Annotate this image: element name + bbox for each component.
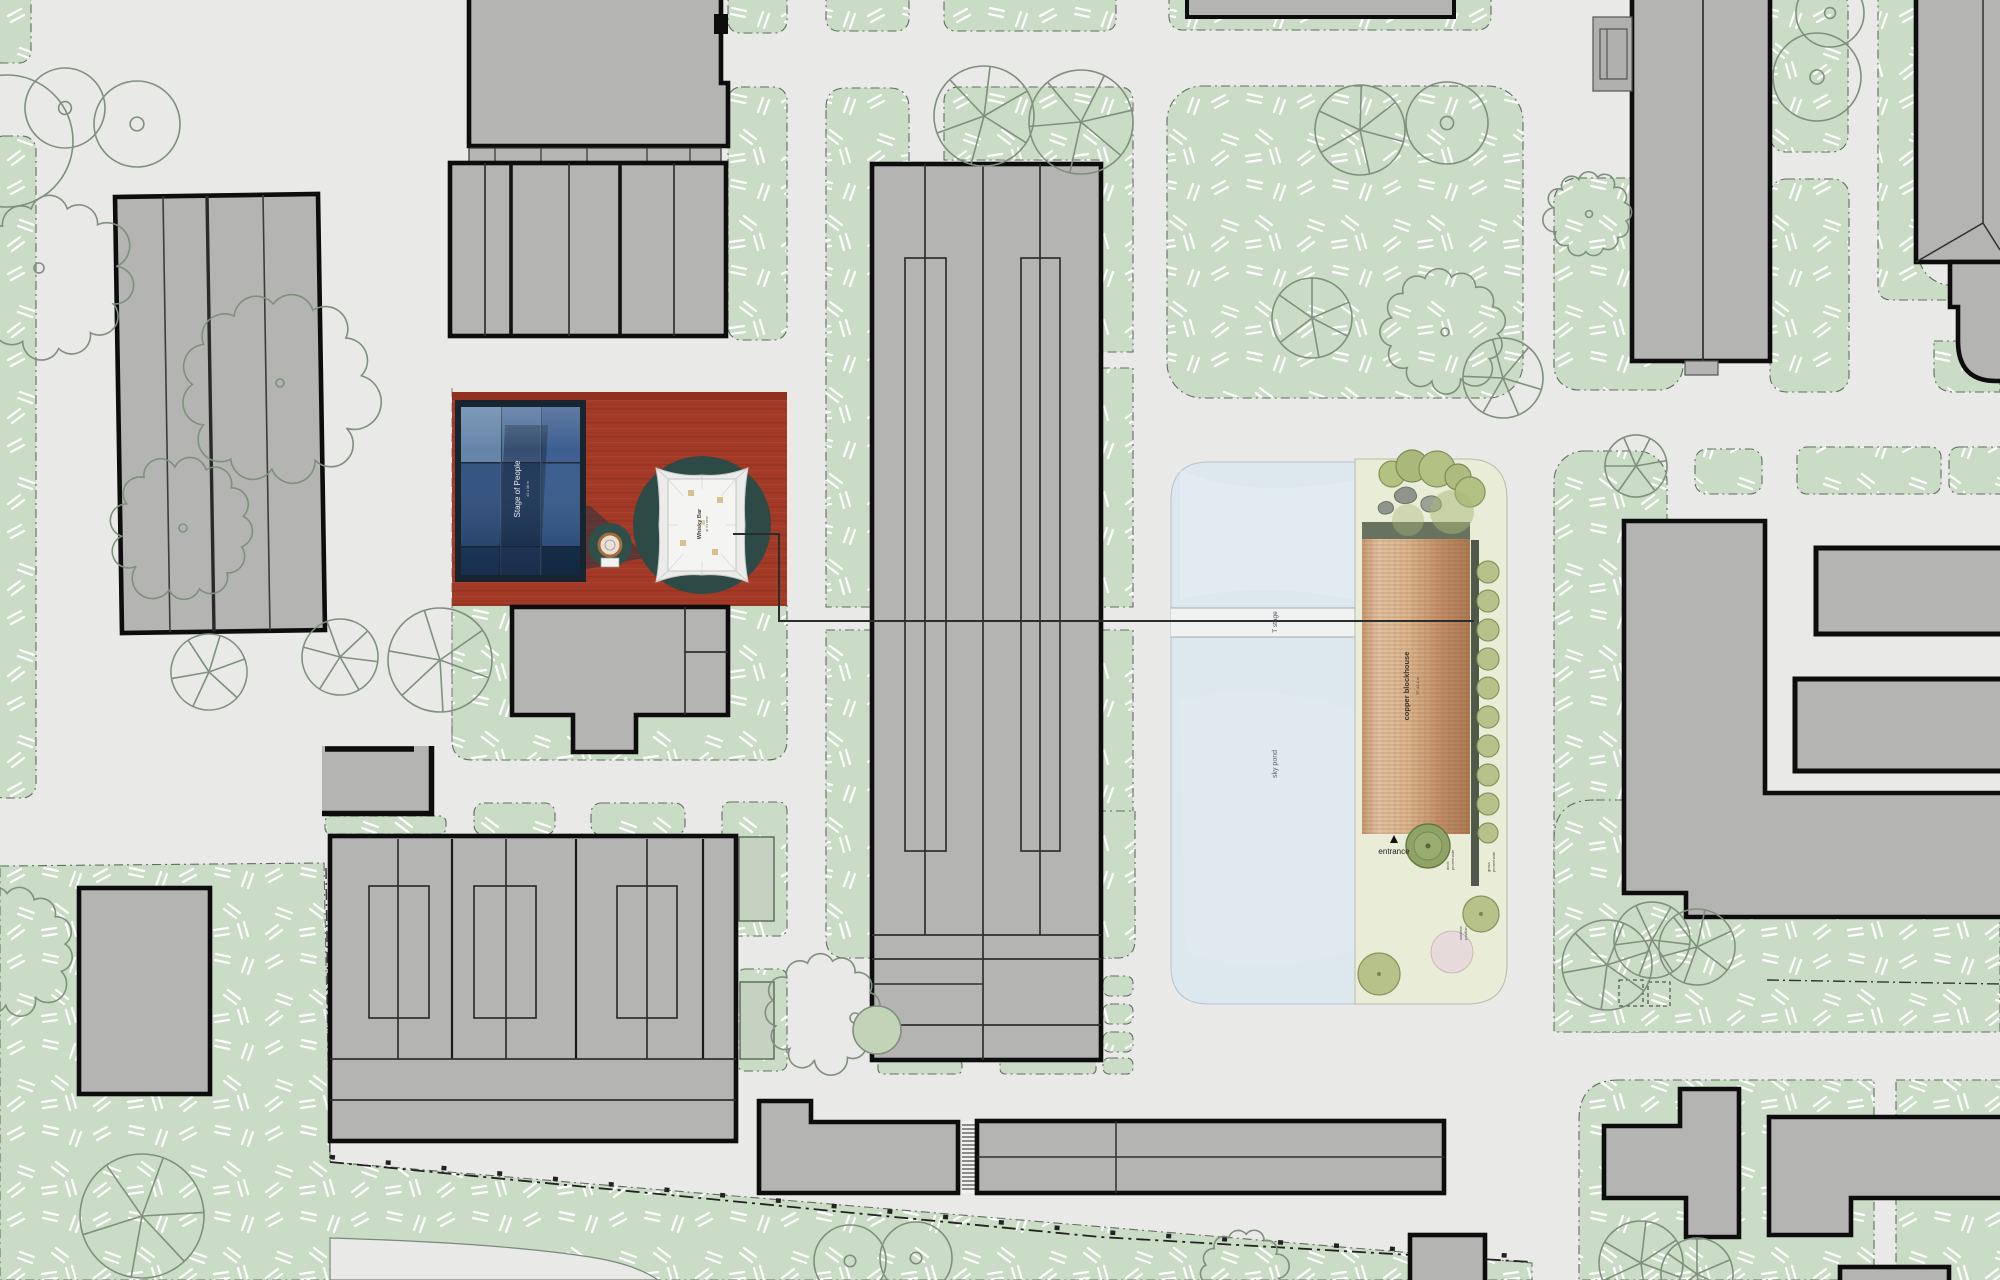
svg-text:Stage of People: Stage of People [513,460,522,517]
svg-text:TF 44.4 m: TF 44.4 m [1415,676,1420,695]
svg-text:44 x 36 m: 44 x 36 m [526,481,530,497]
svg-text:at it's best: at it's best [705,516,709,531]
svg-text:entrance: entrance [1378,847,1410,856]
svg-text:sky pond: sky pond [1272,750,1279,778]
svg-text:promenade: promenade [1491,851,1496,872]
svg-text:T stage: T stage [1272,611,1279,633]
svg-text:copper blockhouse: copper blockhouse [1402,652,1411,721]
svg-text:promenade: promenade [1450,849,1455,870]
svg-text:pavilion: pavilion [1463,926,1468,940]
svg-text:Whisky Bar: Whisky Bar [697,508,703,539]
